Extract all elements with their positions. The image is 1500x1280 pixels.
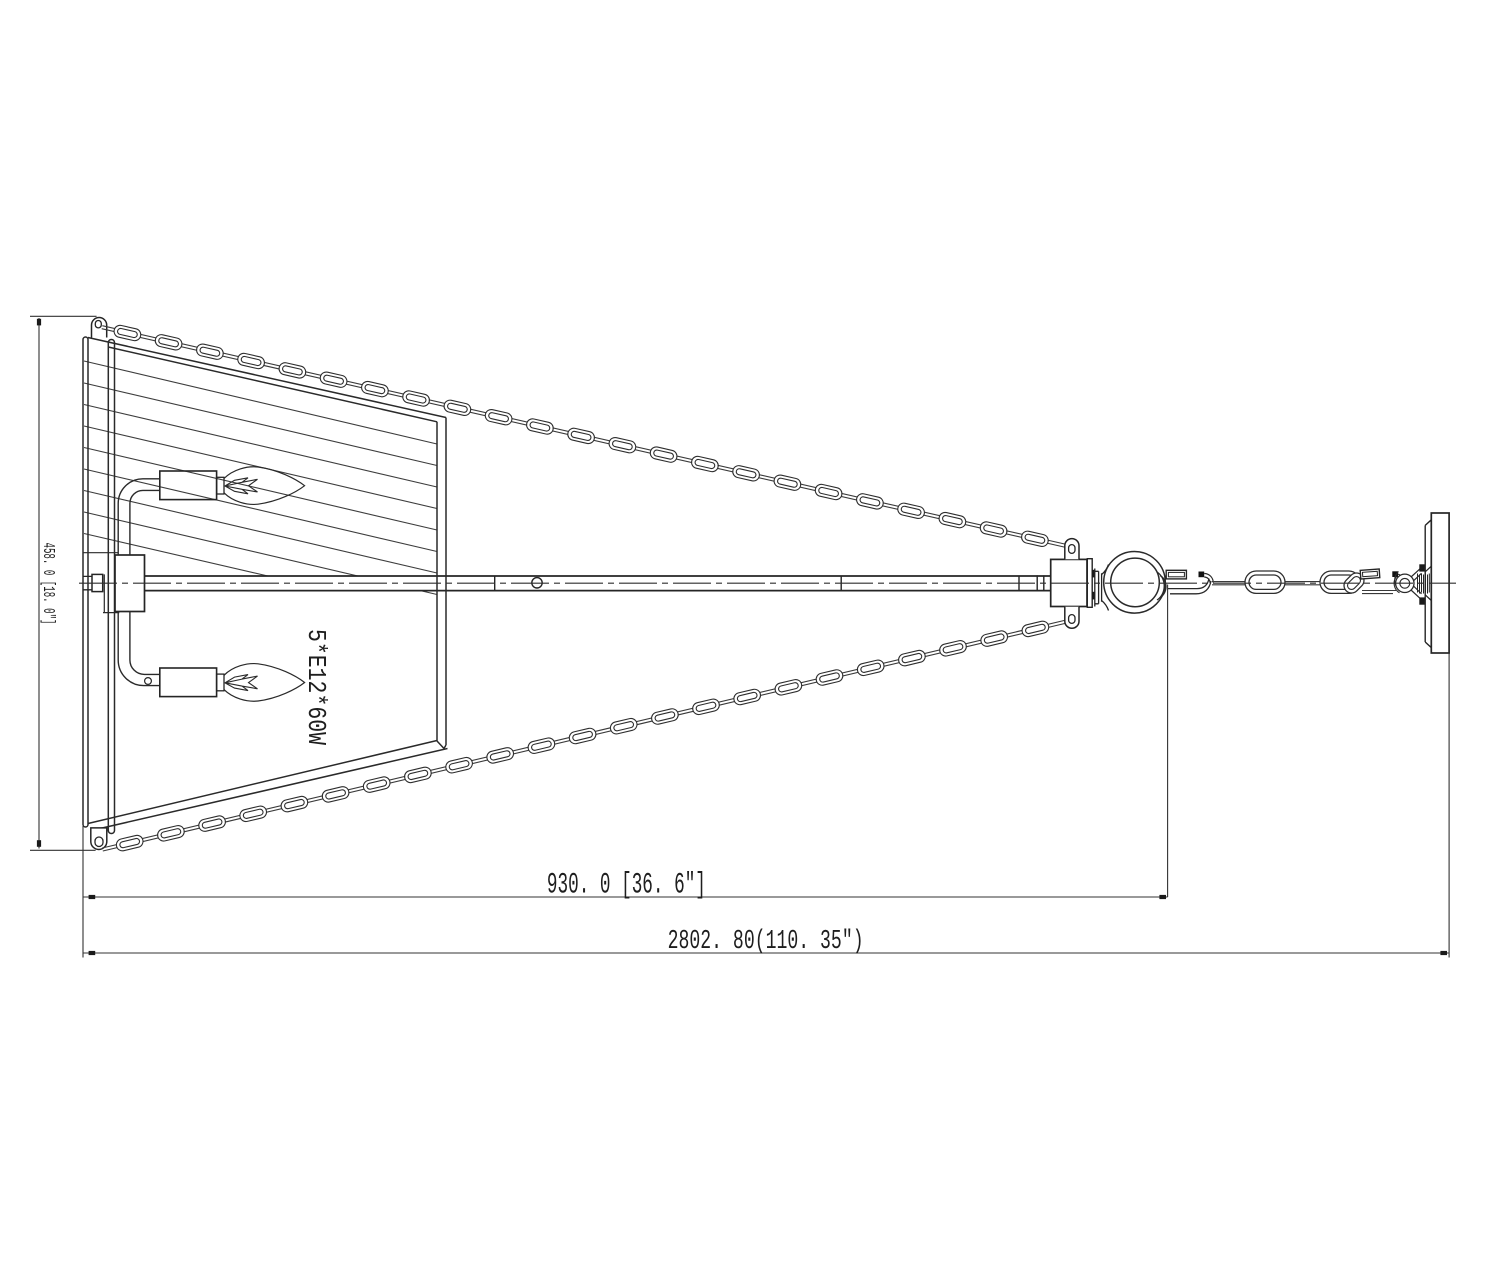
svg-text:458. 0 [18. 0"]: 458. 0 [18. 0"]	[38, 543, 57, 625]
svg-text:5*E12*60W: 5*E12*60W	[301, 629, 331, 745]
svg-text:930. 0 [36. 6"]: 930. 0 [36. 6"]	[547, 869, 706, 903]
svg-text:2802. 80(110. 35"): 2802. 80(110. 35")	[668, 926, 864, 956]
